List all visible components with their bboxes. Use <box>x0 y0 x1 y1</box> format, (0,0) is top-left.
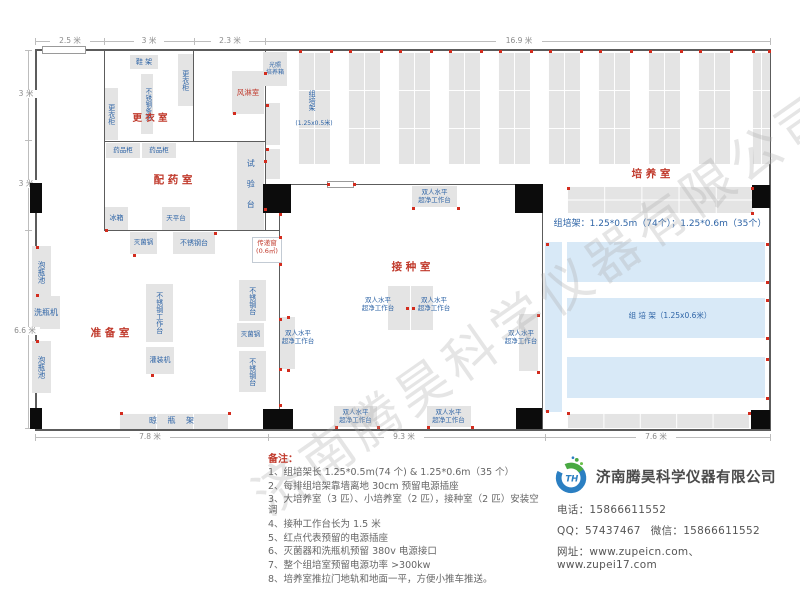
phone-row: 电话：15866611552 <box>557 502 793 517</box>
power-socket-dot <box>546 243 549 246</box>
rack-size-label: (1.25x0.5米) <box>288 120 340 128</box>
door-opening <box>516 408 542 429</box>
power-socket-dot <box>499 50 502 53</box>
power-socket-dot <box>279 236 282 239</box>
power-socket-dot <box>766 299 769 302</box>
medicine-cabinet-label: 药品柜 <box>149 147 169 155</box>
culture-rack <box>348 52 380 164</box>
steel-workbench-label: 不锈钢工作台 <box>155 292 163 334</box>
power-socket-dot <box>279 368 282 371</box>
wall <box>193 50 194 142</box>
power-socket-dot <box>36 246 39 249</box>
sterilizer-label: 灭菌锅 <box>134 239 154 247</box>
bottle-washer-label: 洗瓶机 <box>34 308 58 318</box>
power-socket-dot <box>335 426 338 429</box>
wall <box>104 230 280 231</box>
dimension-label: 2.5 米 <box>50 37 90 45</box>
clean-bench-label: 双人水平 超净工作台 <box>352 296 404 313</box>
culture-rack <box>545 242 562 412</box>
shoe-rack: 鞋 架 <box>130 55 158 69</box>
light-incubator: 光照 培养箱 <box>263 52 287 86</box>
window <box>327 181 354 188</box>
drying-rack: 晾 瓶 架 <box>119 413 228 429</box>
room-label-preparation: 准 备 室 <box>68 327 152 341</box>
steel-table-label: 不锈钢台 <box>248 358 256 386</box>
wechat-value: 15866611552 <box>683 525 760 537</box>
power-socket-dot <box>399 50 402 53</box>
culture-rack <box>448 52 480 164</box>
rack-label: 组培架 <box>307 80 316 120</box>
power-socket-dot <box>120 412 123 415</box>
rack-summary: 组培架：1.25*0.5m（74个）；1.25*0.6m（35个） <box>550 219 770 231</box>
note-item: 7、整个组培室预留电源功率 >300kw <box>268 561 546 572</box>
dimension-line <box>545 434 546 441</box>
medicine-cabinet: 药品柜 <box>142 143 176 158</box>
window <box>42 46 86 54</box>
power-socket-dot <box>449 50 452 53</box>
dimension-line <box>35 38 36 45</box>
shoe-rack-label: 鞋 架 <box>136 58 152 66</box>
locker: 更衣柜 <box>105 88 118 140</box>
light-incubator-label: 光照 培养箱 <box>266 62 284 76</box>
door-opening <box>263 409 293 429</box>
power-socket-dot <box>680 50 683 53</box>
power-socket-dot <box>567 187 570 190</box>
door-opening <box>515 184 543 213</box>
dimension-line <box>25 230 32 231</box>
power-socket-dot <box>751 187 754 190</box>
room-label-culture: 培 养 室 <box>608 168 694 182</box>
power-socket-dot <box>279 213 282 216</box>
dimension-label: 16.9 米 <box>496 37 542 45</box>
dimension-line <box>770 434 771 441</box>
note-item: 4、接种工作台长为 1.5 米 <box>268 520 546 531</box>
company-name: 济南腾昊科学仪器有限公司 <box>596 466 776 487</box>
power-socket-dot <box>751 212 754 215</box>
wall <box>35 49 771 51</box>
power-socket-dot <box>349 50 352 53</box>
cabinet <box>266 149 280 179</box>
dimension-line <box>25 50 32 51</box>
culture-rack <box>498 52 530 164</box>
medicine-cabinet: 药品柜 <box>106 143 140 158</box>
sterilizer: 灭菌锅 <box>130 232 157 254</box>
dimension-label: 2.3 米 <box>211 37 249 45</box>
power-socket-dot <box>299 50 302 53</box>
dimension-line <box>25 140 32 141</box>
power-socket-dot <box>567 412 570 415</box>
filling-machine-label: 灌装机 <box>150 356 171 364</box>
power-socket-dot <box>266 148 269 151</box>
clean-bench-label: 双人水平 超净工作台 <box>331 408 380 425</box>
wall <box>279 184 280 430</box>
dimension-label: 9.3 米 <box>384 433 424 441</box>
notes-list: 1、组培架长 1.25*0.5m(74 个) & 1.25*0.6m（35 个）… <box>268 468 546 586</box>
wall <box>265 184 543 185</box>
rack-label: 组 培 架（1.25x0.6米） <box>600 311 740 321</box>
floor-plan-document: 鞋 架更衣柜不锈钢条凳更衣柜风淋室光照 培养箱药品柜药品柜冰箱天平台试 验 台灭… <box>0 0 800 600</box>
clean-bench-label: 双人水平 超净工作台 <box>274 329 322 346</box>
power-socket-dot <box>412 207 415 210</box>
clean-bench-label: 双人水平 超净工作台 <box>408 296 460 313</box>
power-socket-dot <box>279 318 282 321</box>
qq-label: QQ： <box>557 525 585 537</box>
door-opening <box>751 410 770 429</box>
steel-table-label: 不锈钢台 <box>180 239 208 247</box>
power-socket-dot <box>287 316 290 319</box>
power-socket-dot <box>377 426 380 429</box>
dimension-line <box>35 434 36 441</box>
power-socket-dot <box>768 50 771 53</box>
power-socket-dot <box>151 374 154 377</box>
soak-pool-label: 泡瓶池 <box>37 261 46 284</box>
steel-table-label: 不锈钢台 <box>248 287 256 315</box>
power-socket-dot <box>264 208 267 211</box>
culture-rack <box>698 52 730 164</box>
power-socket-dot <box>287 369 290 372</box>
transfer-window-label: 传递窗 (0.6㎡) <box>249 239 285 256</box>
culture-rack <box>567 413 749 428</box>
door-opening <box>30 183 42 213</box>
culture-rack <box>567 357 765 398</box>
door-opening <box>752 185 770 208</box>
culture-rack <box>398 52 430 164</box>
dimension-label: 3 米 <box>134 37 164 45</box>
soak-pool: 泡瓶池 <box>32 246 51 298</box>
power-socket-dot <box>406 307 409 310</box>
power-socket-dot <box>330 50 333 53</box>
dimension-line <box>28 50 29 428</box>
power-socket-dot <box>430 50 433 53</box>
air-shower: 风淋室 <box>232 71 264 114</box>
power-socket-dot <box>279 263 282 266</box>
locker-label: 更衣柜 <box>107 104 115 125</box>
power-socket-dot <box>133 254 136 257</box>
culture-rack <box>752 52 770 164</box>
power-socket-dot <box>36 340 39 343</box>
balance-table: 天平台 <box>162 207 190 230</box>
test-bench-label: 试 验 台 <box>246 159 256 213</box>
note-item: 3、大培养室（3 匹）、小培养室（2 匹），接种室（2 匹）安装空调 <box>268 495 546 517</box>
power-socket-dot <box>412 307 415 310</box>
qq-wechat-row: QQ：57437467微信：15866611552 <box>557 523 793 538</box>
room-label-dispensing: 配 药 室 <box>128 174 218 188</box>
room-label-dressing: 更 衣 室 <box>120 113 180 125</box>
power-socket-dot <box>537 314 540 317</box>
power-socket-dot <box>766 281 769 284</box>
power-socket-dot <box>546 410 549 413</box>
power-socket-dot <box>599 50 602 53</box>
steel-table: 不锈钢台 <box>239 280 266 321</box>
power-socket-dot <box>471 426 474 429</box>
power-socket-dot <box>264 160 267 163</box>
wall <box>35 429 771 431</box>
power-socket-dot <box>228 412 231 415</box>
soak-pool: 泡瓶池 <box>32 341 51 393</box>
culture-rack <box>567 242 765 282</box>
steel-table: 不锈钢台 <box>239 351 266 392</box>
dimension-label: 6.6 米 <box>10 327 40 335</box>
balance-table-label: 天平台 <box>166 215 186 223</box>
website-label: 网址： <box>557 546 589 558</box>
power-socket-dot <box>580 50 583 53</box>
power-socket-dot <box>233 112 236 115</box>
power-socket-dot <box>327 183 330 186</box>
wechat-label: 微信： <box>651 525 683 537</box>
note-item: 1、组培架长 1.25*0.5m(74 个) & 1.25*0.6m（35 个） <box>268 468 546 479</box>
air-shower-label: 风淋室 <box>237 88 260 97</box>
wall <box>542 184 543 430</box>
company-logo: TH <box>553 456 591 496</box>
culture-rack <box>598 52 630 164</box>
sterilizer: 灭菌锅 <box>237 323 264 347</box>
power-socket-dot <box>353 183 356 186</box>
medicine-cabinet-label: 药品柜 <box>113 147 133 155</box>
power-socket-dot <box>649 50 652 53</box>
test-bench: 试 验 台 <box>237 142 264 230</box>
dimension-label: 7.8 米 <box>130 433 170 441</box>
power-socket-dot <box>549 50 552 53</box>
sterilizer-label: 灭菌锅 <box>241 331 261 339</box>
qq-value: 57437467 <box>585 525 641 537</box>
power-socket-dot <box>380 50 383 53</box>
culture-rack <box>548 52 580 164</box>
bottle-washer: 洗瓶机 <box>32 296 60 329</box>
drying-rack-label: 晾 瓶 架 <box>149 416 198 426</box>
power-socket-dot <box>766 337 769 340</box>
company-header: TH 济南腾昊科学仪器有限公司 <box>553 456 793 496</box>
power-socket-dot <box>730 50 733 53</box>
power-socket-dot <box>105 229 108 232</box>
dimension-line <box>268 434 269 441</box>
company-info: TH 济南腾昊科学仪器有限公司 电话：15866611552 QQ：574374… <box>553 456 793 571</box>
power-socket-dot <box>427 426 430 429</box>
dimension-line <box>194 38 195 45</box>
clean-bench-label: 双人水平 超净工作台 <box>424 408 473 425</box>
website-row: 网址：www.zupeicn.com、www.zupei17.com <box>557 544 793 571</box>
power-socket-dot <box>752 50 755 53</box>
dimension-line <box>104 38 105 45</box>
culture-rack <box>567 186 753 213</box>
phone-value: 15866611552 <box>589 504 666 516</box>
notes-title: 备注： <box>268 450 546 465</box>
power-socket-dot <box>766 397 769 400</box>
fridge: 冰箱 <box>105 207 128 230</box>
power-socket-dot <box>766 243 769 246</box>
power-socket-dot <box>699 50 702 53</box>
locker: 更衣柜 <box>178 54 193 106</box>
power-socket-dot <box>264 72 267 75</box>
steel-table: 不锈钢台 <box>173 232 215 254</box>
dimension-label: 7.6 米 <box>636 433 676 441</box>
door-opening <box>30 408 42 429</box>
power-socket-dot <box>537 371 540 374</box>
power-socket-dot <box>748 412 751 415</box>
dimension-line <box>770 38 771 45</box>
soak-pool-label: 泡瓶池 <box>37 356 46 379</box>
note-item: 8、培养室推拉门地轨和地面一平，方便小推车推送。 <box>268 575 546 586</box>
note-item: 6、灭菌器和洗瓶机预留 380v 电源接口 <box>268 547 546 558</box>
cabinet <box>266 103 280 145</box>
note-item: 5、红点代表预留的电源插座 <box>268 534 546 545</box>
notes: 备注： 1、组培架长 1.25*0.5m(74 个) & 1.25*0.6m（3… <box>268 450 546 586</box>
power-socket-dot <box>266 104 269 107</box>
dimension-line <box>265 38 266 45</box>
logo-text: TH <box>565 475 578 485</box>
power-socket-dot <box>766 358 769 361</box>
power-socket-dot <box>530 50 533 53</box>
door-opening <box>263 184 291 213</box>
power-socket-dot <box>214 232 217 235</box>
phone-label: 电话： <box>557 504 589 516</box>
culture-rack <box>648 52 680 164</box>
fridge-label: 冰箱 <box>110 214 124 222</box>
dimension-label: 3 米 <box>14 90 38 98</box>
filling-machine: 灌装机 <box>146 347 174 374</box>
room-label-inoculation: 接 种 室 <box>368 261 454 275</box>
note-item: 2、每排组培架靠墙离地 30cm 预留电源插座 <box>268 482 546 493</box>
power-socket-dot <box>36 294 39 297</box>
power-socket-dot <box>457 207 460 210</box>
clean-bench-label: 双人水平 超净工作台 <box>497 329 545 346</box>
locker-label: 更衣柜 <box>181 70 189 91</box>
power-socket-dot <box>279 404 282 407</box>
power-socket-dot <box>630 50 633 53</box>
clean-bench-label: 双人水平 超净工作台 <box>410 188 459 205</box>
power-socket-dot <box>480 50 483 53</box>
